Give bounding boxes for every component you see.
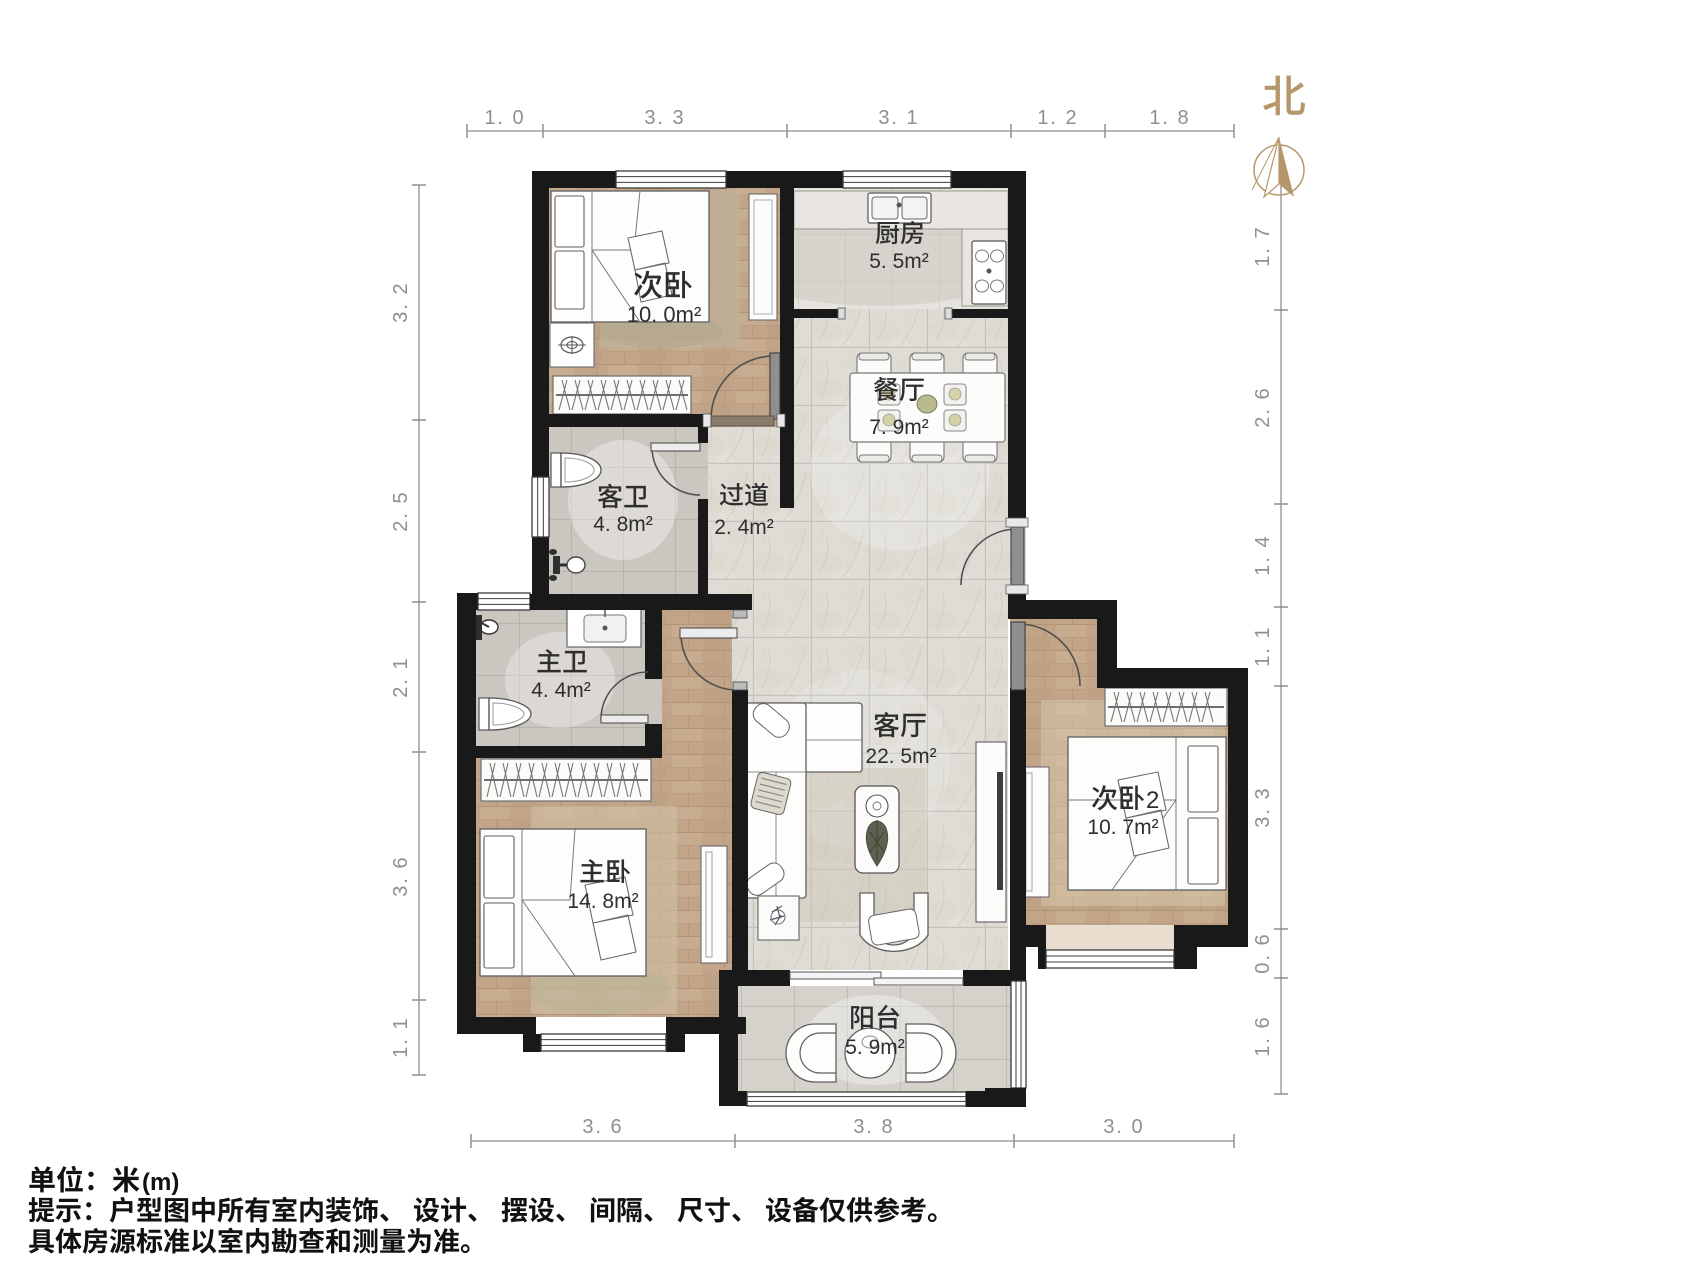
svg-text:3. 3: 3. 3	[1252, 786, 1274, 827]
svg-text:10. 7m²: 10. 7m²	[1087, 816, 1158, 839]
svg-text:1. 0: 1. 0	[484, 107, 525, 129]
svg-text:1. 6: 1. 6	[1252, 1015, 1274, 1056]
svg-text:5. 5m²: 5. 5m²	[869, 250, 929, 273]
svg-text:3. 1: 3. 1	[878, 107, 919, 129]
svg-text:3. 6: 3. 6	[390, 855, 412, 896]
svg-text:4. 4m²: 4. 4m²	[531, 679, 591, 702]
svg-text:1. 7: 1. 7	[1252, 225, 1274, 266]
svg-text:4. 8m²: 4. 8m²	[593, 513, 653, 536]
svg-text:10. 0m²: 10. 0m²	[627, 302, 702, 327]
svg-text:(m): (m)	[142, 1169, 179, 1196]
svg-text:14. 8m²: 14. 8m²	[567, 890, 638, 913]
svg-text:2: 2	[1146, 787, 1159, 814]
svg-text:3. 3: 3. 3	[644, 107, 685, 129]
svg-text:2. 6: 2. 6	[1252, 386, 1274, 427]
svg-text:1. 1: 1. 1	[1252, 625, 1274, 666]
svg-text:7. 9m²: 7. 9m²	[869, 416, 929, 439]
svg-text:22. 5m²: 22. 5m²	[865, 745, 936, 768]
svg-text:3. 8: 3. 8	[853, 1116, 894, 1138]
svg-text:2. 4m²: 2. 4m²	[714, 516, 774, 539]
svg-text:3. 0: 3. 0	[1103, 1116, 1144, 1138]
svg-text:2. 1: 2. 1	[390, 656, 412, 697]
svg-text:5. 9m²: 5. 9m²	[845, 1036, 905, 1059]
svg-text:3. 2: 3. 2	[390, 281, 412, 322]
svg-text:2. 5: 2. 5	[390, 490, 412, 531]
svg-text:3. 6: 3. 6	[582, 1116, 623, 1138]
svg-text:1. 8: 1. 8	[1149, 107, 1190, 129]
svg-text:1. 2: 1. 2	[1037, 107, 1078, 129]
svg-text:1. 1: 1. 1	[390, 1016, 412, 1057]
svg-text:0. 6: 0. 6	[1252, 932, 1274, 973]
svg-text:1. 4: 1. 4	[1252, 534, 1274, 575]
